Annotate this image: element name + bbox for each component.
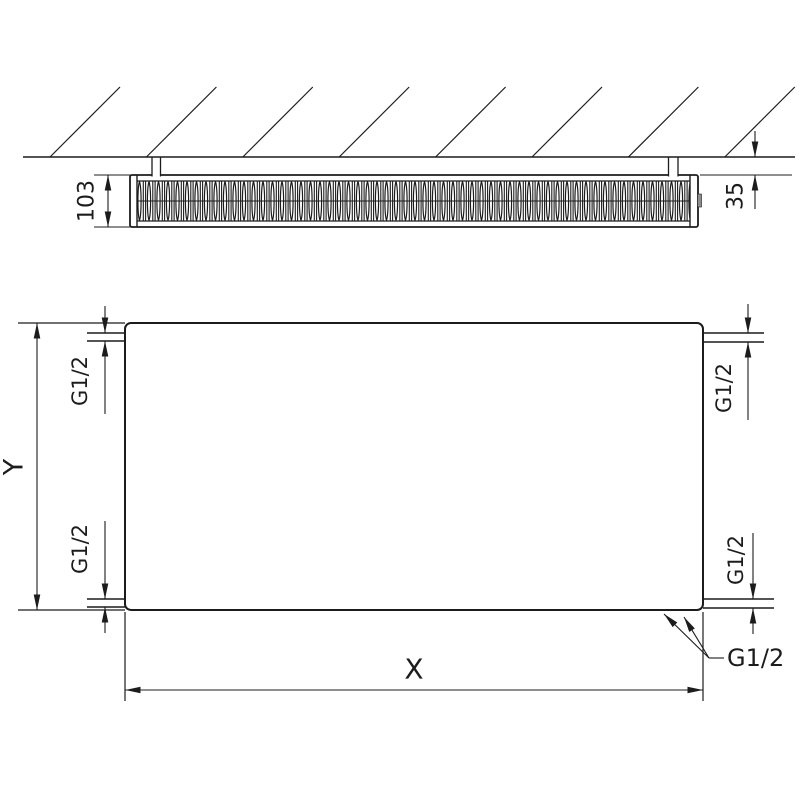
mounting-bracket-right — [669, 157, 679, 177]
width-dimension-label: X — [404, 653, 423, 686]
dimension-depth: 103 — [75, 175, 132, 227]
depth-dimension-label: 103 — [75, 180, 100, 222]
dimension-g12-bottom-right: G1/2 — [724, 533, 753, 634]
mounting-bracket-left — [152, 157, 161, 177]
callout-g12-bottom: G1/2 — [664, 614, 784, 672]
connection-stub-bottom-left — [87, 599, 125, 607]
dimension-width-x: X — [125, 612, 703, 701]
g12-label-top-left: G1/2 — [68, 356, 92, 406]
dimension-g12-top-right: G1/2 — [712, 304, 748, 420]
height-dimension-label: Y — [0, 458, 30, 476]
radiator-technical-drawing: 103 35 — [0, 0, 800, 800]
g12-label-bottom-callout: G1/2 — [727, 644, 784, 672]
g12-label-top-right: G1/2 — [712, 363, 736, 413]
side-view: 103 35 — [23, 87, 795, 227]
g12-label-bottom-right: G1/2 — [724, 535, 748, 585]
wall-distance-dimension-label: 35 — [724, 182, 749, 210]
dimension-height-y: Y — [0, 323, 37, 610]
radiator-fins — [137, 181, 690, 221]
connection-stub-top-left — [87, 333, 125, 341]
g12-label-bottom-left: G1/2 — [68, 524, 92, 574]
dimension-g12-top-left: G1/2 — [68, 306, 105, 414]
radiator-cross-section — [130, 175, 702, 227]
wall — [23, 87, 795, 157]
connection-stub-bottom-right — [703, 599, 774, 608]
side-connection-tab — [698, 194, 702, 207]
radiator-front-panel — [125, 323, 703, 610]
connection-stub-top-right — [703, 333, 764, 342]
front-view: G1/2 G1/2 G1/2 G1/2 G1/2 — [0, 304, 784, 701]
dimension-wall-distance: 35 — [700, 131, 792, 210]
dimension-g12-bottom-left: G1/2 — [68, 521, 105, 633]
wall-hatching — [50, 87, 795, 157]
